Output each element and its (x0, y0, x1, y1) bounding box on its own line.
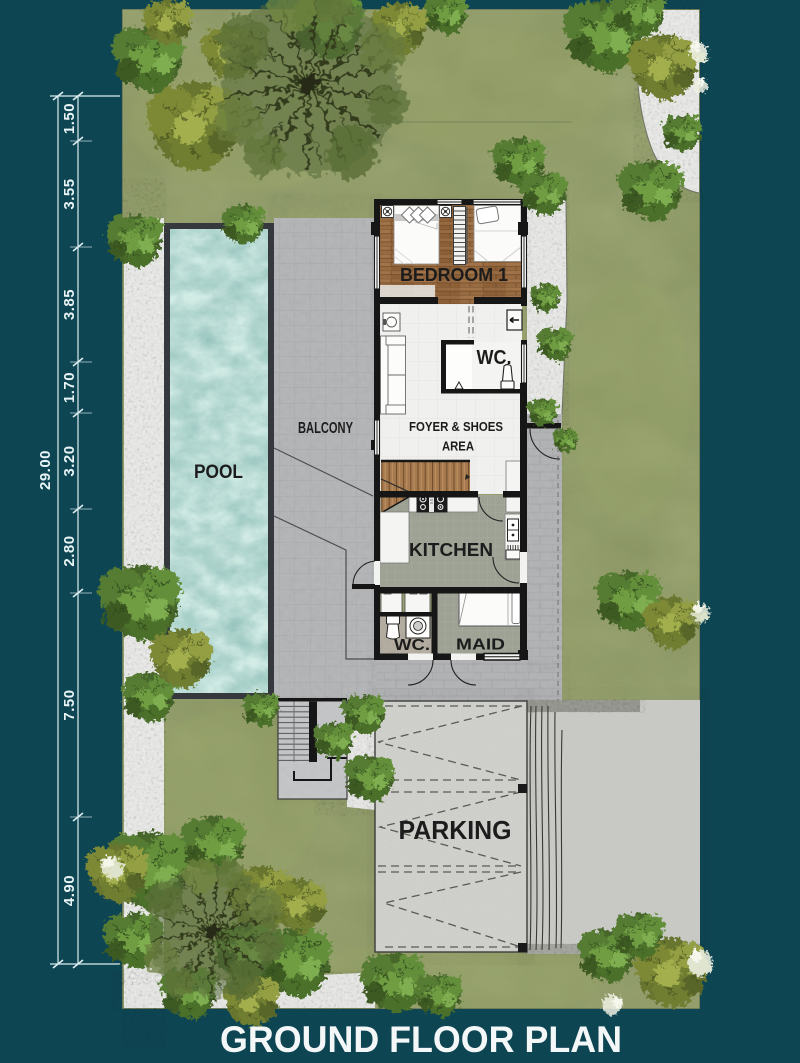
svg-text:2.80: 2.80 (61, 535, 78, 566)
svg-text:3.85: 3.85 (61, 289, 78, 320)
svg-text:BEDROOM 1: BEDROOM 1 (400, 265, 508, 285)
svg-text:29.00: 29.00 (37, 450, 54, 490)
svg-text:3.55: 3.55 (61, 178, 78, 209)
svg-text:POOL: POOL (194, 461, 243, 483)
svg-text:BALCONY: BALCONY (298, 420, 353, 437)
svg-text:FOYER & SHOES: FOYER & SHOES (409, 419, 503, 434)
svg-text:WC.: WC. (394, 637, 430, 654)
svg-text:1.50: 1.50 (61, 103, 78, 134)
svg-text:1.70: 1.70 (61, 372, 78, 403)
svg-text:WC.: WC. (477, 347, 512, 369)
svg-text:7.50: 7.50 (61, 689, 78, 720)
svg-text:AREA: AREA (442, 439, 475, 454)
svg-text:MAID: MAID (456, 637, 505, 654)
svg-text:4.90: 4.90 (61, 875, 78, 906)
svg-text:PARKING: PARKING (399, 815, 512, 845)
svg-text:KITCHEN: KITCHEN (409, 539, 493, 560)
svg-text:GROUND FLOOR PLAN: GROUND FLOOR PLAN (220, 1018, 622, 1060)
svg-text:3.20: 3.20 (61, 445, 78, 476)
